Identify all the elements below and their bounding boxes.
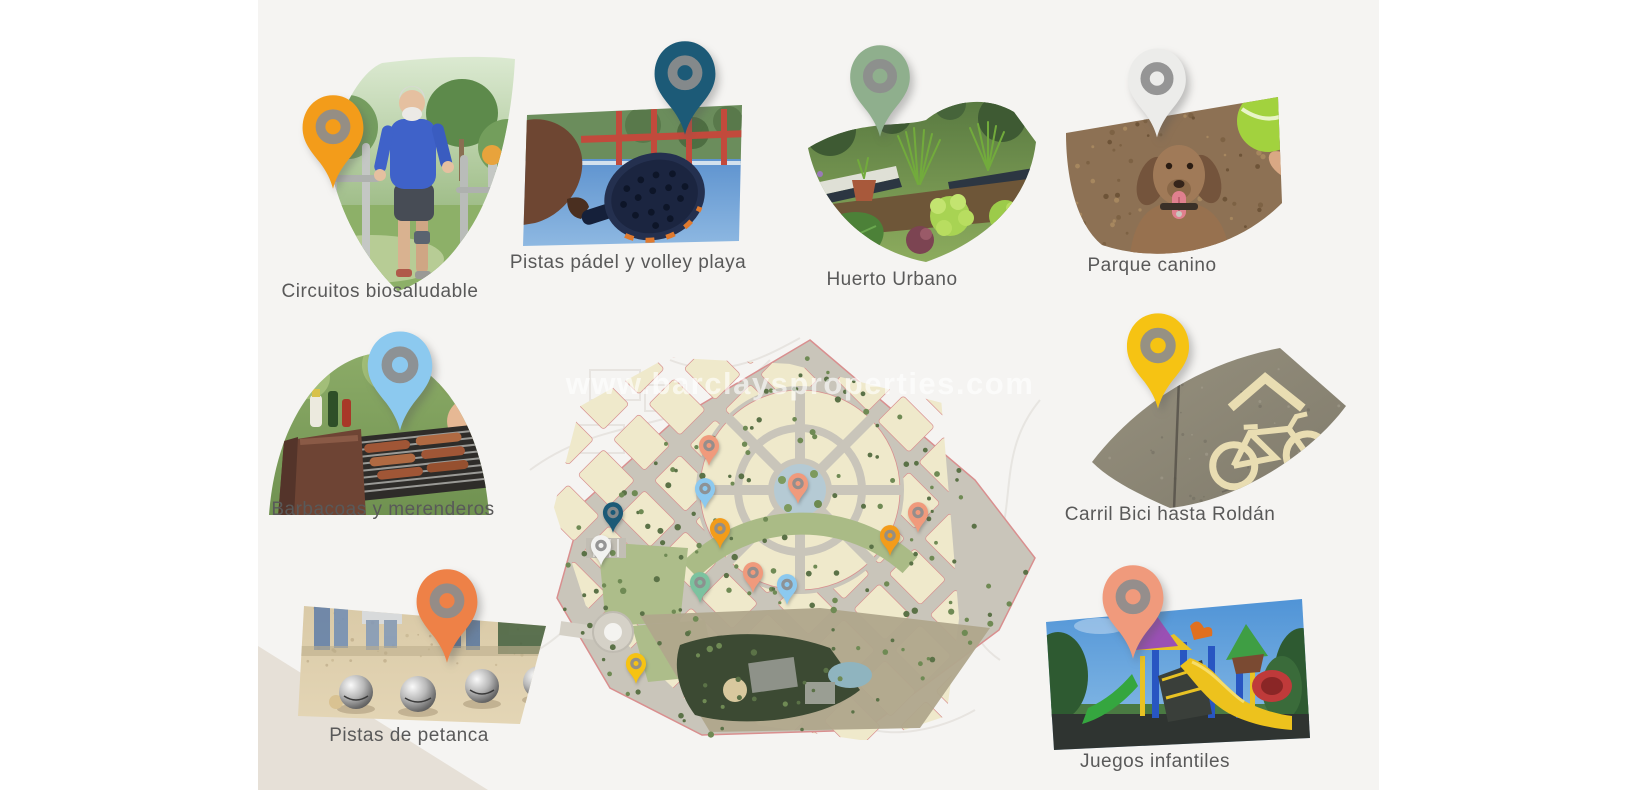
map-mini-pin-icon xyxy=(906,501,930,534)
map-mini-pin-icon xyxy=(708,517,732,550)
map-pin-icon-canino xyxy=(1124,45,1190,141)
map-pin-icon-padel xyxy=(649,38,721,138)
infographic-stage: www.barclaysproperties.com xyxy=(0,0,1638,790)
map-pin-icon-barbacoas xyxy=(362,328,438,434)
photo-huerto xyxy=(800,88,1040,270)
map-mini-pin-icon xyxy=(589,534,613,567)
map-mini-pin-icon xyxy=(624,652,648,685)
amenity-label-huerto: Huerto Urbano xyxy=(826,269,957,291)
map-pin-icon-circuitos xyxy=(297,92,369,192)
amenity-label-circuitos: Circuitos biosaludable xyxy=(282,281,479,303)
map-mini-pin-icon xyxy=(878,524,902,557)
map-mini-pin-icon xyxy=(741,561,765,594)
amenity-label-carril: Carril Bici hasta Roldán xyxy=(1065,504,1276,526)
amenity-label-juegos: Juegos infantiles xyxy=(1080,751,1230,773)
amenity-label-petanca: Pistas de petanca xyxy=(329,725,489,747)
map-mini-pin-icon xyxy=(697,434,721,467)
map-pin-icon-petanca xyxy=(411,566,483,666)
map-mini-pin-icon xyxy=(775,573,799,606)
amenity-label-padel: Pistas pádel y volley playa xyxy=(510,252,746,274)
map-pin-icon-huerto xyxy=(845,42,915,140)
map-mini-pin-icon xyxy=(786,472,810,505)
map-pin-icon-juegos xyxy=(1097,562,1169,662)
map-mini-pin-icon xyxy=(601,501,625,534)
amenity-label-canino: Parque canino xyxy=(1087,255,1216,277)
map-mini-pin-icon xyxy=(693,477,717,510)
map-pin-icon-carril xyxy=(1120,310,1196,412)
amenity-label-barbacoas: Barbacoas y merenderos xyxy=(271,499,494,521)
map-mini-pin-icon xyxy=(688,571,712,604)
photo-juegos xyxy=(1040,596,1315,756)
